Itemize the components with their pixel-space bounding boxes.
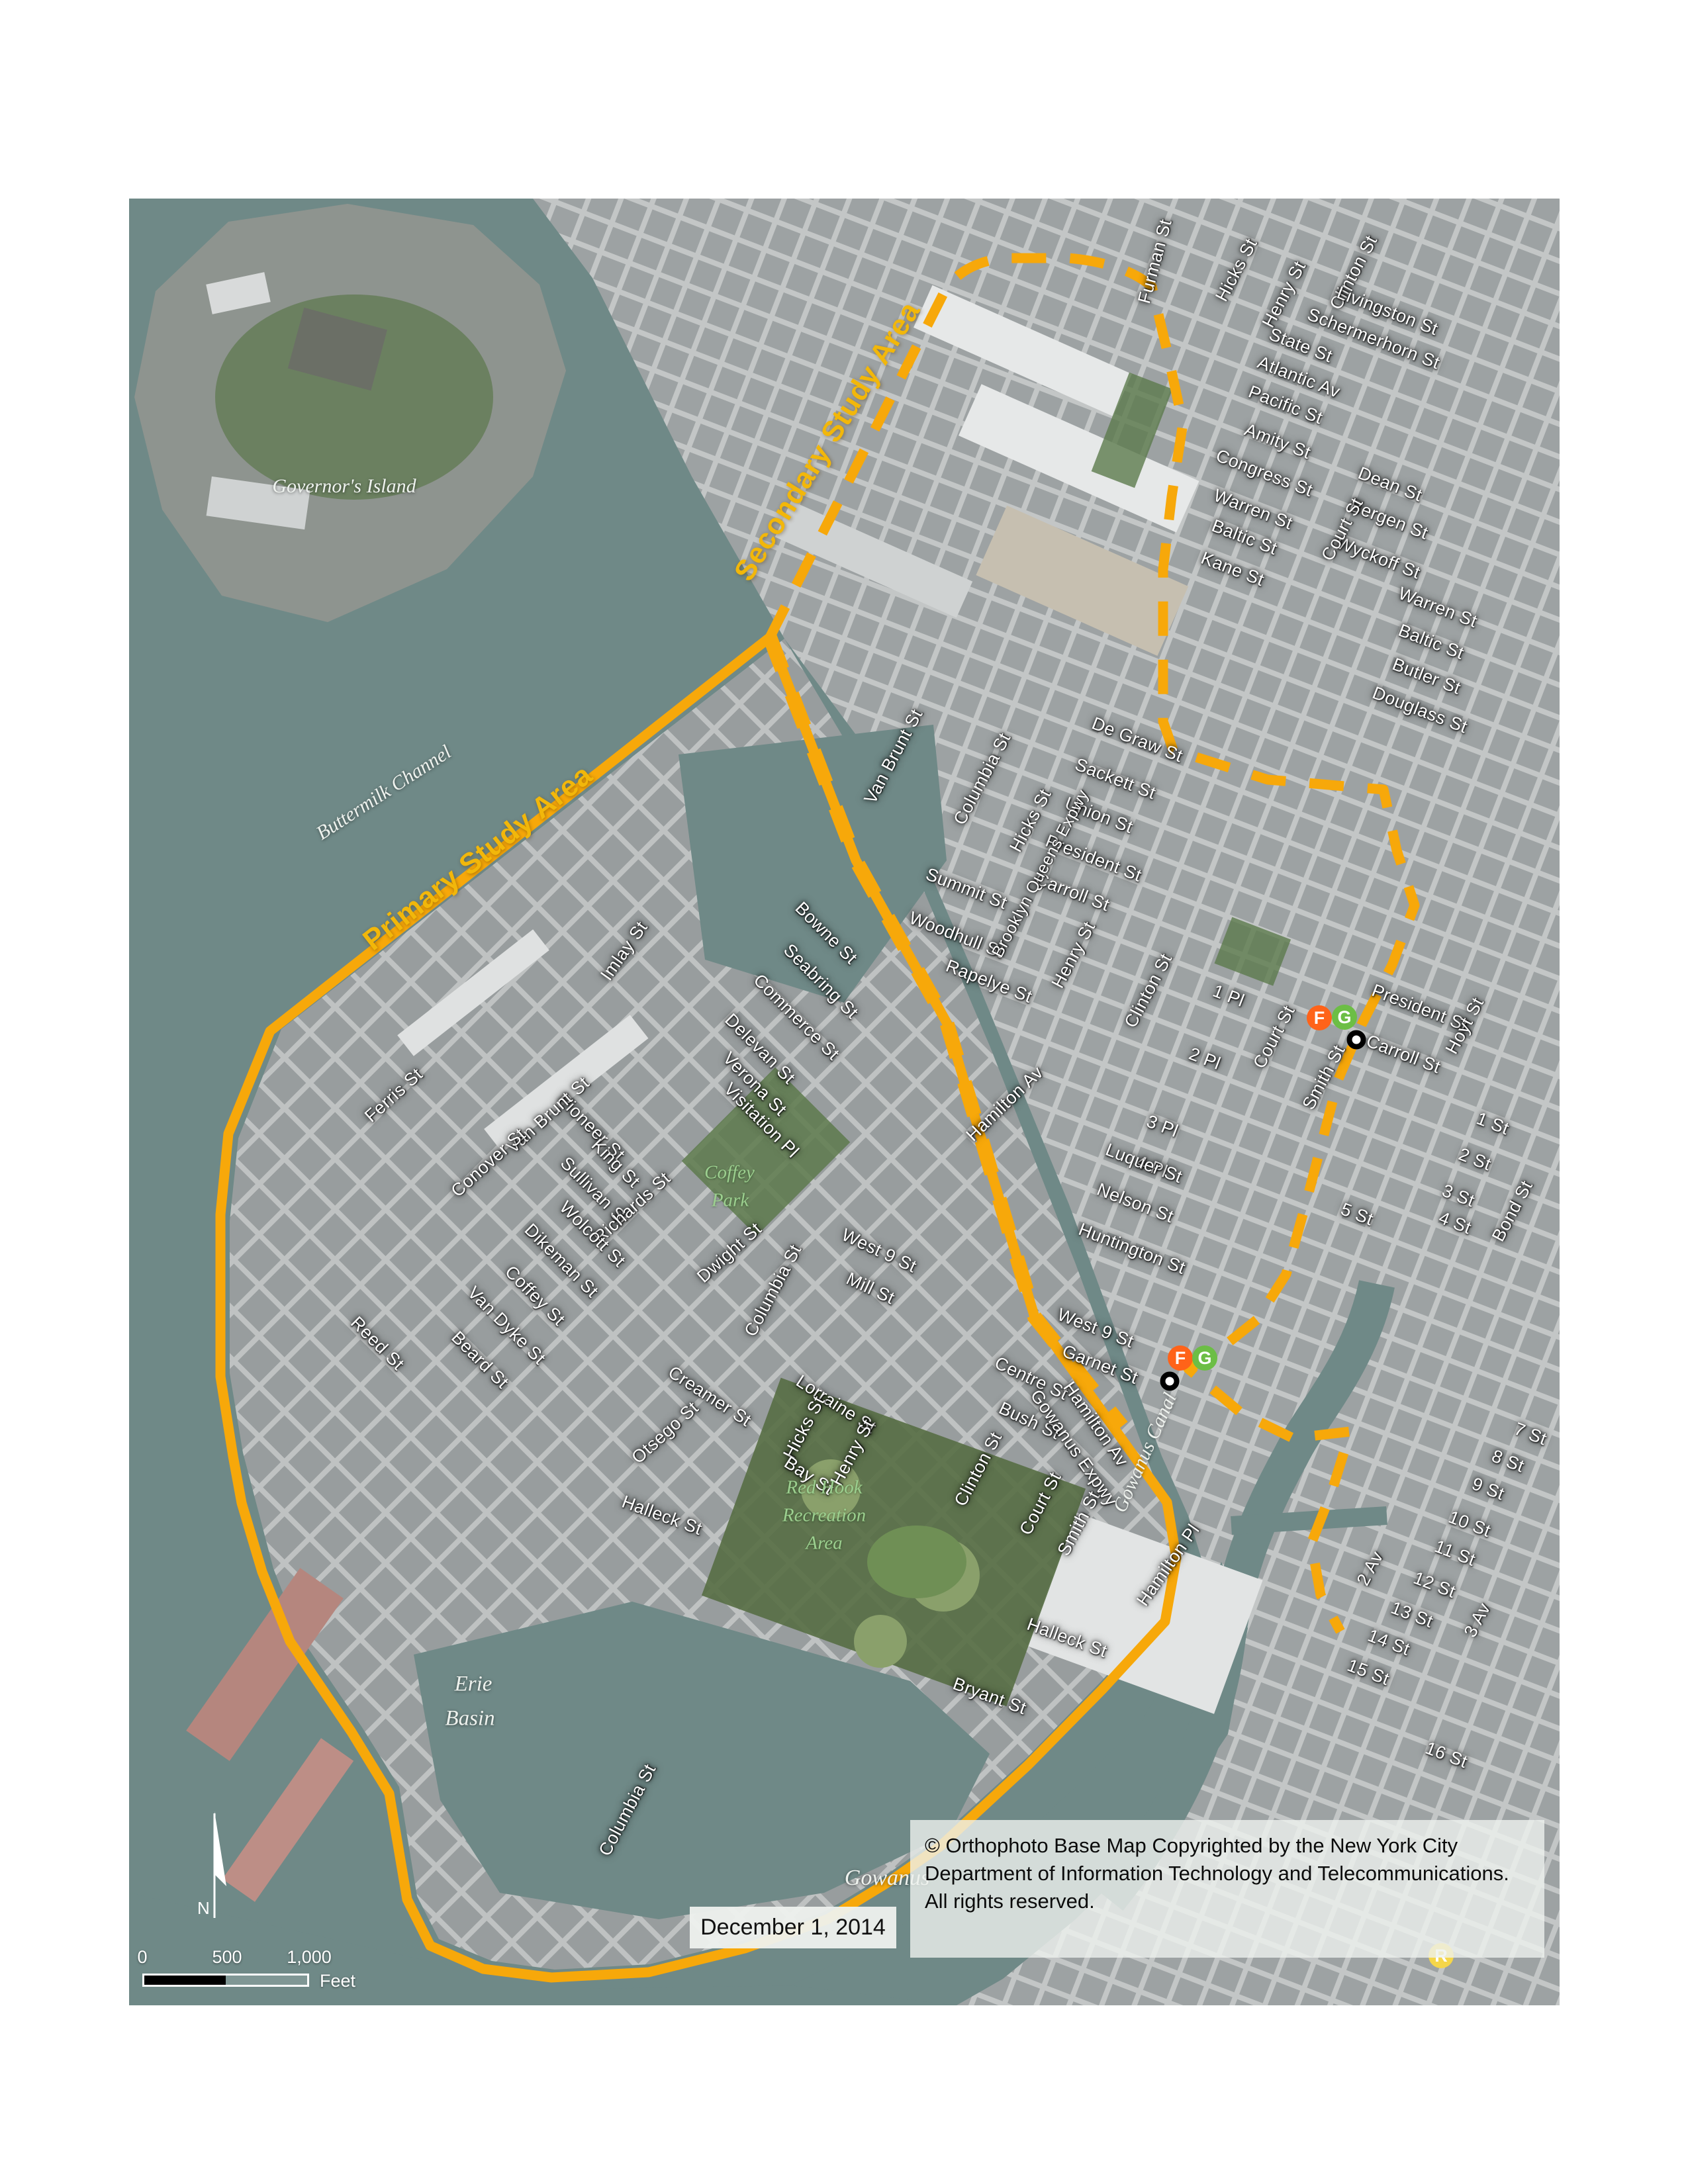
street-label: Dwight St: [693, 1218, 766, 1287]
scale-bar: [142, 1974, 309, 1987]
water-body-label: Erie: [455, 1672, 492, 1697]
street-label: 3 Pl: [1144, 1111, 1181, 1142]
street-label: Columbia St: [740, 1241, 806, 1340]
scale-tick-0: 0: [137, 1947, 147, 1968]
park-label: Area: [806, 1533, 842, 1555]
street-label: 2 Av: [1353, 1548, 1388, 1589]
street-label: Huntington St: [1076, 1219, 1188, 1279]
north-label: N: [197, 1898, 210, 1918]
water-body-label: Basin: [445, 1707, 494, 1731]
street-label: 12 St: [1411, 1568, 1458, 1602]
street-label: Summit St: [923, 864, 1010, 913]
street-label: Clinton St: [951, 1429, 1007, 1510]
scale-bar-black-half: [144, 1976, 226, 1985]
street-label: Woodhull St: [906, 908, 1007, 963]
scale-bar-open-half: [226, 1976, 307, 1985]
map-labels: Furman StHicks StHenry StClinton StLivin…: [129, 199, 1560, 2005]
date-box: December 1, 2014: [690, 1907, 896, 1948]
park-label: Coffey: [704, 1162, 755, 1184]
street-label: Hamilton Av: [962, 1062, 1048, 1146]
street-label: 3 Av: [1460, 1600, 1495, 1641]
subway-bullet-f-icon: F: [1168, 1345, 1193, 1371]
street-label: Smith St: [1298, 1042, 1349, 1113]
street-label: 13 St: [1388, 1598, 1436, 1632]
north-arrow: N: [192, 1808, 238, 1927]
copyright-line: All rights reserved.: [925, 1888, 1530, 1915]
street-label: Henry St: [1048, 919, 1100, 992]
street-label: Hicks St: [779, 1392, 829, 1463]
street-label: 10 St: [1446, 1507, 1493, 1541]
street-label: Bond St: [1488, 1177, 1537, 1245]
subway-bullet-g-icon: G: [1192, 1345, 1217, 1371]
subway-bullet-f-icon: F: [1307, 1005, 1332, 1030]
street-label: Nelson St: [1094, 1179, 1177, 1228]
street-label: 5 St: [1338, 1199, 1376, 1230]
street-label: Rapelye St: [943, 956, 1035, 1007]
water-body-label: Governor's Island: [272, 475, 416, 498]
street-label: 9 St: [1469, 1474, 1507, 1505]
scale-unit-label: Feet: [320, 1971, 355, 1991]
street-label: Luquer St: [1103, 1140, 1186, 1188]
subway-bullet-g-icon: G: [1332, 1005, 1357, 1030]
street-label: Court St: [1015, 1469, 1066, 1539]
street-label: 15 St: [1344, 1655, 1392, 1690]
street-label: 4 St: [1436, 1208, 1474, 1239]
subway-station-dot-icon: [1347, 1030, 1366, 1050]
street-label: Ferris St: [361, 1064, 427, 1126]
street-label: Kane St: [1198, 548, 1267, 591]
street-label: Hamilton Pl: [1133, 1520, 1204, 1610]
copyright-box: © Orthophoto Base Map Copyrighted by the…: [910, 1820, 1544, 1958]
street-label: Columbia St: [594, 1760, 660, 1859]
street-label: Court St: [1249, 1002, 1299, 1072]
street-label: 14 St: [1365, 1625, 1413, 1660]
street-label: Otsego St: [628, 1398, 702, 1468]
street-label: 3 St: [1439, 1181, 1477, 1212]
scale-tick-1000: 1,000: [287, 1947, 332, 1968]
street-label: 2 Pl: [1186, 1044, 1223, 1074]
water-body-label: Buttermilk Channel: [312, 741, 455, 845]
street-label: Bryant St: [950, 1674, 1029, 1719]
street-label: 1 St: [1474, 1109, 1512, 1140]
street-label: Furman St: [1134, 217, 1176, 306]
street-label: Conover St: [447, 1124, 530, 1202]
street-label: Halleck St: [1024, 1614, 1110, 1662]
street-label: Henry St: [1258, 258, 1311, 332]
copyright-line: Department of Information Technology and…: [925, 1860, 1530, 1888]
park-label: Park: [712, 1190, 749, 1212]
study-area-label: Secondary Study Area: [728, 296, 927, 587]
street-label: 1 Pl: [1210, 981, 1247, 1011]
park-label: Red Hook: [786, 1477, 862, 1499]
copyright-line: © Orthophoto Base Map Copyrighted by the…: [925, 1832, 1530, 1860]
street-label: Reed St: [346, 1312, 408, 1374]
orthophoto-map: Furman StHicks StHenry StClinton StLivin…: [129, 199, 1560, 2005]
street-label: Halleck St: [619, 1492, 705, 1539]
scale-tick-500: 500: [212, 1947, 242, 1968]
street-label: 7 St: [1511, 1419, 1550, 1450]
street-label: 16 St: [1423, 1738, 1470, 1772]
street-label: Hicks St: [1211, 235, 1262, 305]
street-label: Amity St: [1242, 420, 1314, 463]
north-arrow-head: [214, 1811, 226, 1886]
street-label: Carroll St: [1364, 1030, 1444, 1077]
subway-station-dot-icon: [1160, 1372, 1180, 1391]
street-label: 8 St: [1489, 1446, 1527, 1477]
street-label: Imlay St: [596, 918, 652, 985]
street-label: 2 St: [1456, 1144, 1494, 1175]
street-label: Clinton St: [1121, 950, 1177, 1031]
street-label: Columbia St: [949, 729, 1015, 828]
street-label: De Graw St: [1089, 713, 1186, 767]
street-label: 11 St: [1432, 1536, 1478, 1570]
street-label: Van Brunt St: [860, 705, 927, 807]
street-label: Mill St: [843, 1269, 898, 1309]
park-label: Recreation: [782, 1505, 866, 1527]
